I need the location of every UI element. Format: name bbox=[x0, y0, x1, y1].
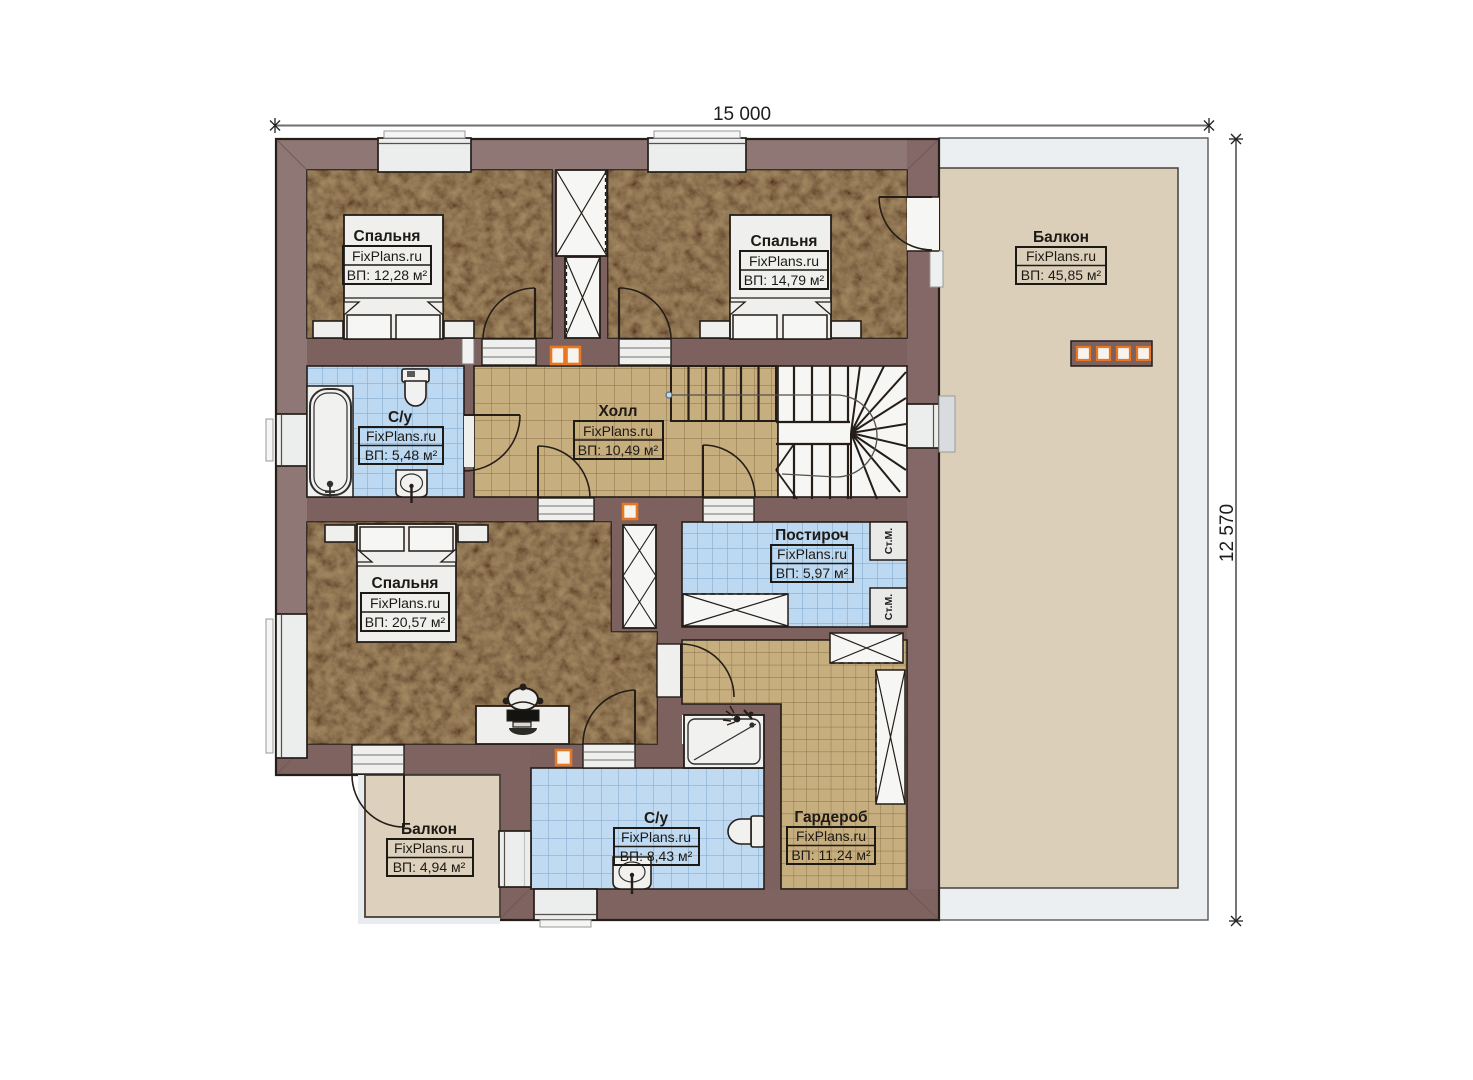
svg-text:ВП: 5,97 м²: ВП: 5,97 м² bbox=[776, 565, 849, 581]
svg-text:Спальня: Спальня bbox=[751, 233, 818, 250]
svg-text:Ст.М.: Ст.М. bbox=[883, 528, 895, 554]
svg-text:Балкон: Балкон bbox=[1033, 229, 1089, 246]
svg-text:15 000: 15 000 bbox=[713, 104, 771, 125]
svg-text:Постироч: Постироч bbox=[775, 527, 849, 544]
svg-text:ВП: 11,24 м²: ВП: 11,24 м² bbox=[791, 847, 871, 863]
svg-text:FixPlans.ru: FixPlans.ru bbox=[370, 595, 440, 611]
svg-text:Балкон: Балкон bbox=[401, 821, 457, 838]
svg-text:ВП: 10,49 м²: ВП: 10,49 м² bbox=[578, 442, 659, 458]
svg-text:FixPlans.ru: FixPlans.ru bbox=[621, 829, 691, 845]
svg-text:Спальня: Спальня bbox=[354, 228, 421, 245]
svg-text:С/у: С/у bbox=[644, 810, 669, 827]
svg-text:FixPlans.ru: FixPlans.ru bbox=[1026, 248, 1096, 264]
svg-text:FixPlans.ru: FixPlans.ru bbox=[366, 428, 436, 444]
svg-text:FixPlans.ru: FixPlans.ru bbox=[796, 828, 866, 844]
svg-text:ВП: 4,94 м²: ВП: 4,94 м² bbox=[393, 859, 466, 875]
svg-text:ВП: 12,28 м²: ВП: 12,28 м² bbox=[347, 267, 428, 283]
svg-text:ВП: 45,85 м²: ВП: 45,85 м² bbox=[1021, 267, 1102, 283]
svg-text:Спальня: Спальня bbox=[372, 575, 439, 592]
svg-text:Холл: Холл bbox=[599, 403, 638, 420]
svg-text:12 570: 12 570 bbox=[1217, 504, 1238, 562]
svg-text:FixPlans.ru: FixPlans.ru bbox=[352, 248, 422, 264]
svg-text:FixPlans.ru: FixPlans.ru bbox=[777, 546, 847, 562]
svg-text:ВП: 20,57 м²: ВП: 20,57 м² bbox=[365, 614, 446, 630]
svg-text:Гардероб: Гардероб bbox=[794, 809, 867, 826]
svg-text:FixPlans.ru: FixPlans.ru bbox=[749, 253, 819, 269]
svg-text:Ст.М.: Ст.М. bbox=[883, 594, 895, 620]
svg-text:FixPlans.ru: FixPlans.ru bbox=[583, 423, 653, 439]
svg-text:FixPlans.ru: FixPlans.ru bbox=[394, 840, 464, 856]
svg-text:ВП: 14,79 м²: ВП: 14,79 м² bbox=[744, 272, 825, 288]
svg-text:ВП: 5,48 м²: ВП: 5,48 м² bbox=[365, 447, 438, 463]
svg-text:С/у: С/у bbox=[388, 409, 413, 426]
svg-text:ВП: 8,43 м²: ВП: 8,43 м² bbox=[620, 848, 693, 864]
